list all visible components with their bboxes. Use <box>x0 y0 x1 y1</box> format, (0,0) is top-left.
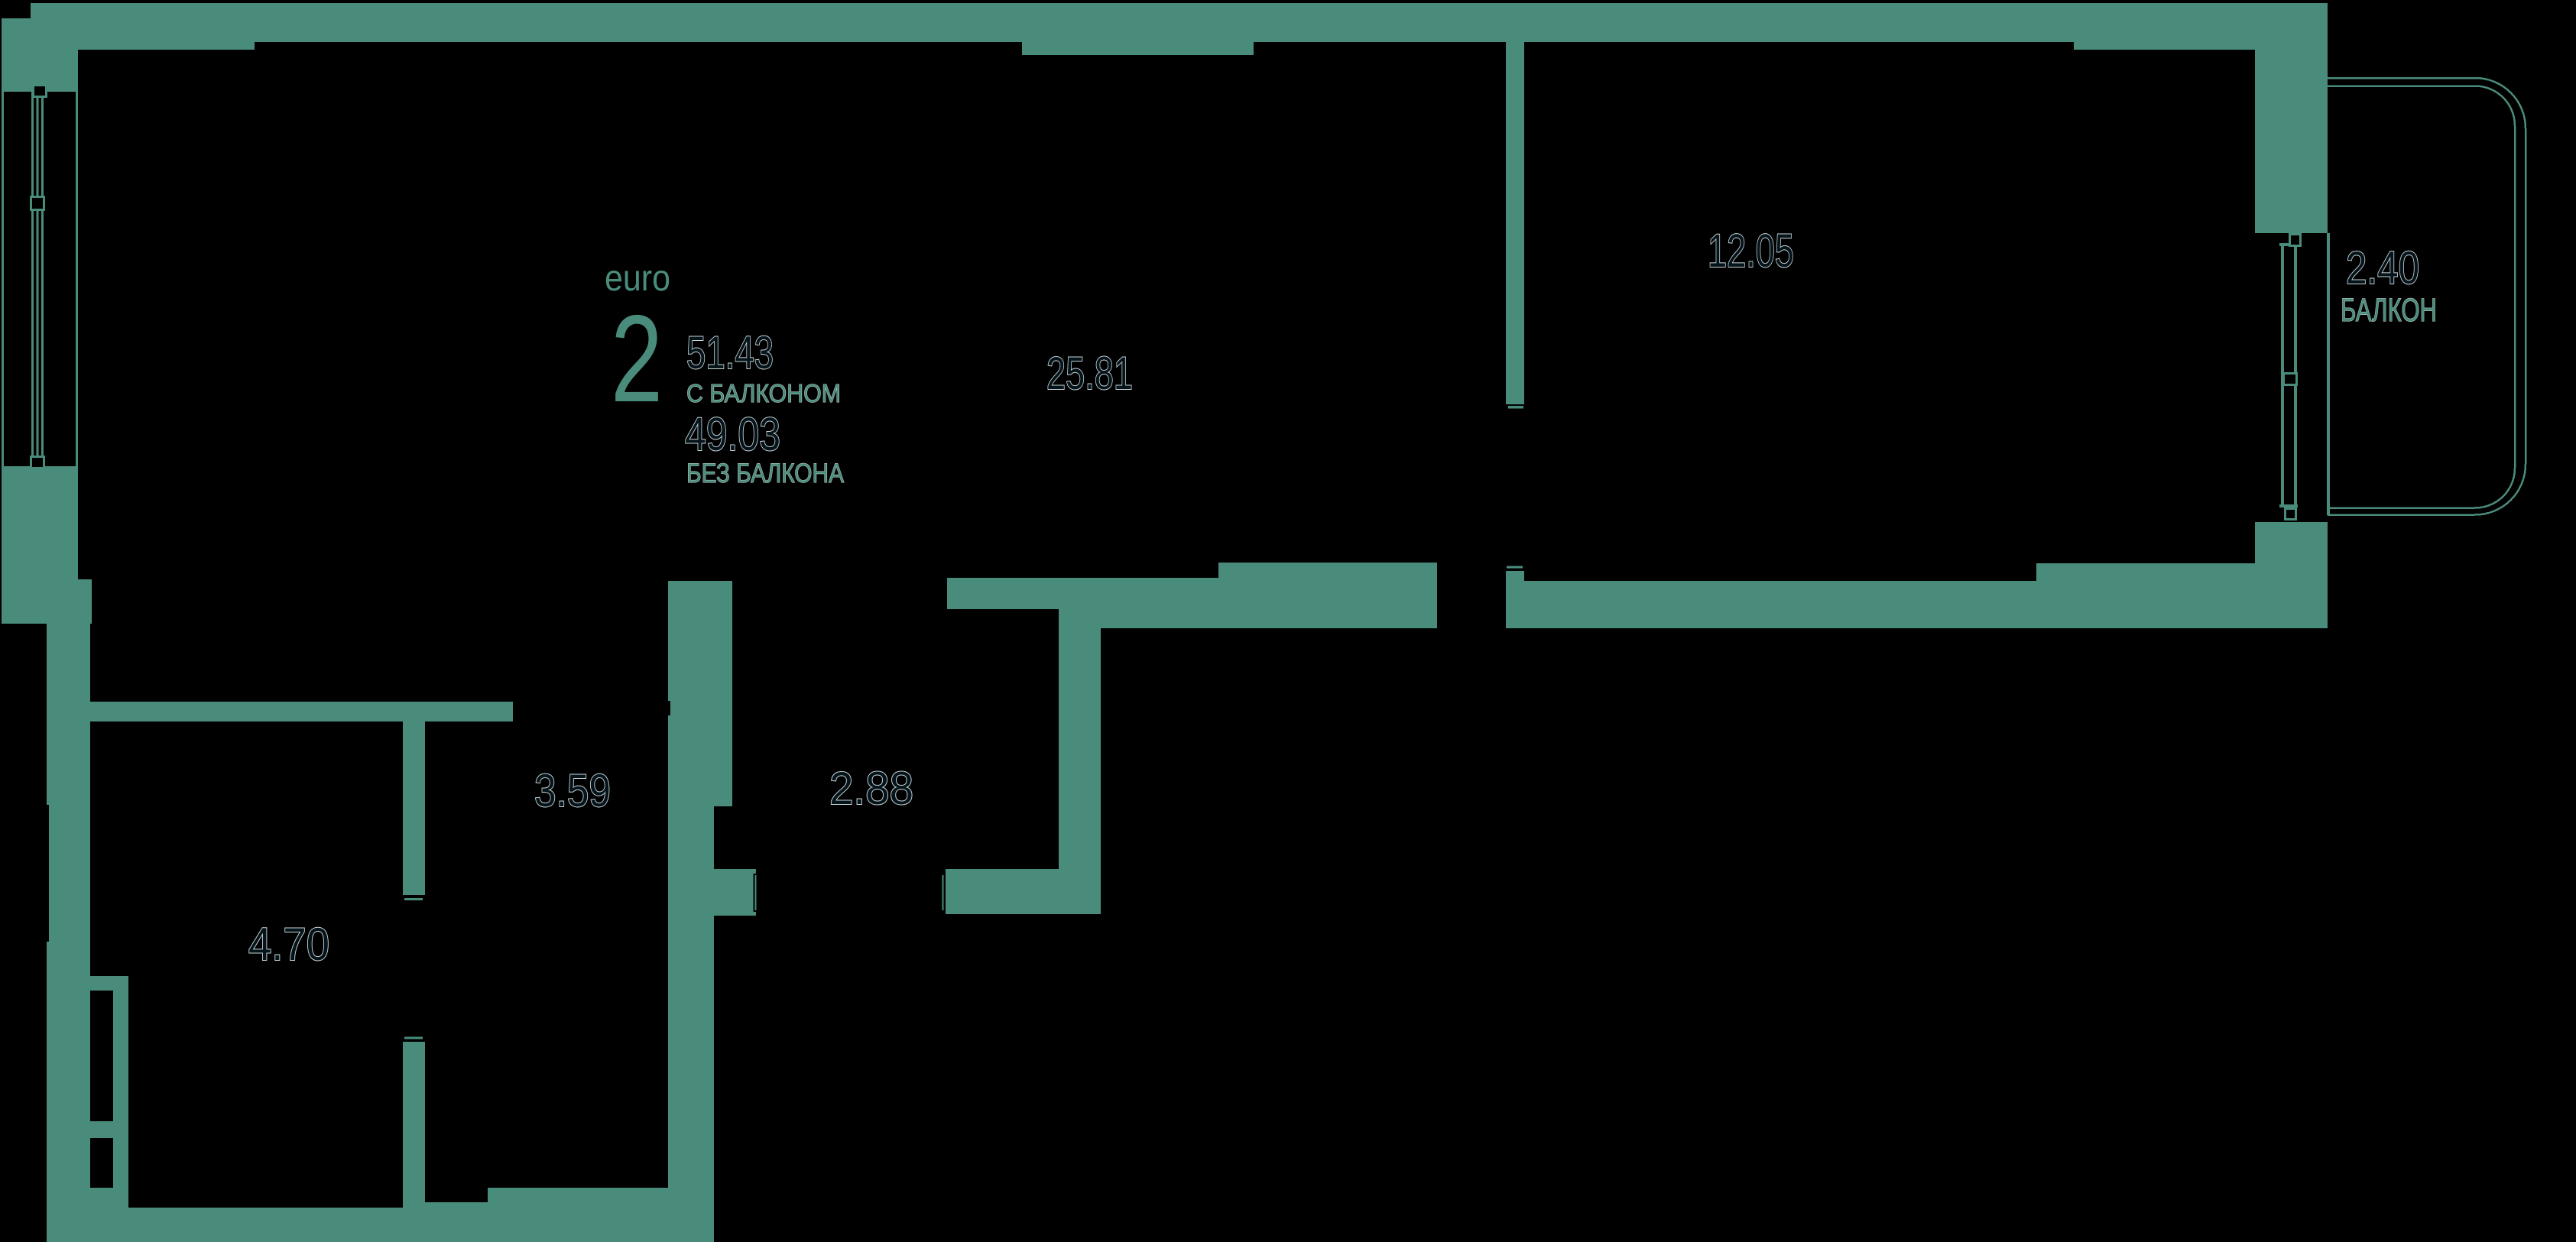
svg-text:3.59: 3.59 <box>534 765 611 816</box>
svg-text:25.81: 25.81 <box>1046 348 1133 399</box>
svg-text:2.88: 2.88 <box>829 763 913 814</box>
svg-text:12.05: 12.05 <box>1708 225 1794 277</box>
svg-text:49.03: 49.03 <box>685 408 780 460</box>
svg-text:С БАЛКОНОМ: С БАЛКОНОМ <box>686 379 841 407</box>
svg-text:БАЛКОН: БАЛКОН <box>2341 292 2437 329</box>
svg-text:БЕЗ БАЛКОНА: БЕЗ БАЛКОНА <box>686 459 845 488</box>
svg-text:51.43: 51.43 <box>686 327 774 378</box>
svg-text:2: 2 <box>611 290 663 428</box>
svg-text:2.40: 2.40 <box>2346 242 2419 293</box>
svg-text:4.70: 4.70 <box>248 919 329 970</box>
